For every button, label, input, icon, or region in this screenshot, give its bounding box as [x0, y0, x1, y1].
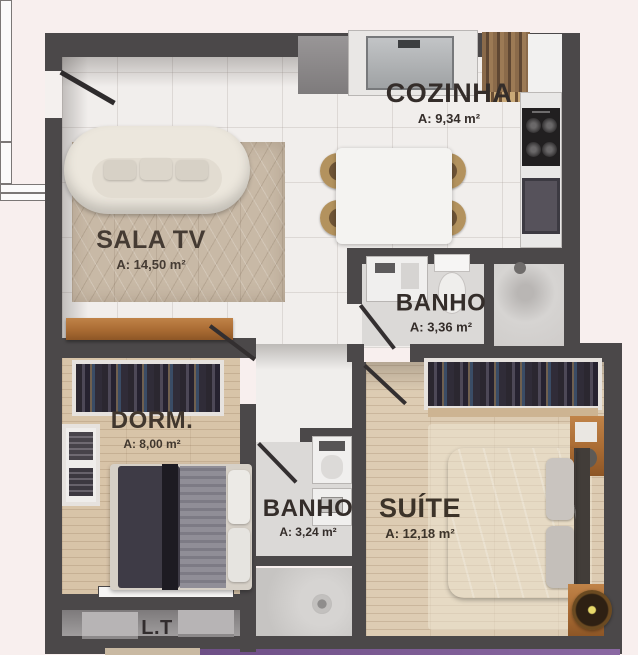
- room-label-sala-tv: SALA TV A: 14,50 m²: [96, 228, 206, 272]
- window-kitchen: [0, 0, 12, 142]
- wall-left: [45, 118, 62, 652]
- dorm-pillow-1: [228, 470, 250, 524]
- room-area-suite: A: 12,18 m²: [379, 526, 461, 541]
- stove-burner-3: [526, 142, 541, 157]
- sofa-cushion-1: [104, 160, 136, 180]
- fridge: [528, 34, 562, 92]
- stove: [522, 108, 560, 166]
- room-name-lt: L.T: [141, 618, 173, 638]
- shower-drain-icon: [312, 594, 332, 614]
- room-label-banho-social: BANHO A: 3,36 m²: [396, 292, 487, 335]
- dorm-shelf-box-2: [69, 468, 93, 496]
- bath-social-basin: [401, 263, 419, 289]
- room-label-cozinha: COZINHA A: 9,34 m²: [386, 80, 513, 126]
- window-bath-social: [0, 142, 12, 184]
- bath-social-faucet: [375, 263, 395, 273]
- shadow-hallway: [256, 344, 352, 370]
- shadow-top-sala: [62, 57, 320, 87]
- room-name-cozinha: COZINHA: [386, 80, 513, 107]
- bath-suite-toilet-tank: [319, 441, 345, 451]
- nightstand-object: [575, 422, 597, 442]
- kitchen-faucet: [398, 40, 420, 48]
- wall-suite-top-left: [347, 344, 364, 362]
- dorm-bed-fold: [162, 464, 178, 590]
- stove-knobs: [532, 111, 550, 113]
- accent-strip-purple: [200, 649, 620, 655]
- shower-social: [494, 264, 564, 346]
- room-area-banho-suite: A: 3,24 m²: [263, 525, 354, 539]
- room-name-banho-social: BANHO: [396, 292, 487, 316]
- wall-right-upper: [562, 33, 580, 348]
- room-label-lt: L.T: [141, 618, 173, 638]
- bath-suite-toilet-seat: [321, 455, 343, 479]
- lt-unit-2: [178, 610, 234, 637]
- stove-burner-1: [526, 118, 541, 133]
- room-label-dorm: DORM. A: 8,00 m²: [111, 409, 194, 451]
- oven: [522, 178, 560, 234]
- room-area-banho-social: A: 3,36 m²: [396, 320, 487, 335]
- sofa-cushion-2: [140, 158, 172, 180]
- room-name-suite: SUÍTE: [379, 495, 461, 522]
- window-bath-suite: [0, 193, 46, 201]
- dorm-shelf: [62, 424, 100, 506]
- shower-head-icon: [514, 262, 526, 274]
- bath-suite-shower-floor: [256, 568, 352, 638]
- wall-suite-bath: [352, 362, 366, 648]
- suite-pillow-1: [546, 458, 574, 520]
- kitchen-cabinet: [298, 36, 350, 94]
- dorm-bed-throw: [180, 466, 226, 588]
- tv-sideboard: [66, 318, 233, 340]
- room-label-banho-suite: BANHO A: 3,24 m²: [263, 497, 354, 539]
- wall-bath-suite-partition: [256, 556, 352, 566]
- room-area-cozinha: A: 9,34 m²: [386, 111, 513, 126]
- entrance-opening: [45, 71, 62, 118]
- dining-table: [336, 148, 452, 244]
- wall-left-stub: [45, 33, 62, 71]
- suite-pillow-2: [546, 526, 574, 588]
- room-name-banho-suite: BANHO: [263, 497, 354, 521]
- stove-burner-4: [542, 142, 557, 157]
- sofa-cushion-3: [176, 160, 208, 180]
- accent-strip-tan: [105, 648, 200, 655]
- suite-headboard: [574, 448, 590, 598]
- toilet-tank: [434, 254, 470, 272]
- floor-plan: COZINHA A: 9,34 m² SALA TV A: 14,50 m² B…: [0, 0, 638, 655]
- suite-wardrobe: [424, 358, 602, 410]
- dorm-bed: [110, 464, 252, 590]
- room-label-suite: SUÍTE A: 12,18 m²: [379, 495, 461, 541]
- bath-suite-toilet: [312, 436, 352, 484]
- dorm-pillow-2: [228, 528, 250, 582]
- room-area-dorm: A: 8,00 m²: [111, 437, 194, 451]
- dorm-shelf-box-1: [69, 432, 93, 460]
- suite-lamp-icon: [572, 590, 612, 630]
- lt-unit-1: [82, 612, 138, 639]
- room-name-sala-tv: SALA TV: [96, 228, 206, 253]
- room-name-dorm: DORM.: [111, 409, 194, 433]
- wall-bath-social-left-stub: [347, 248, 362, 304]
- stove-burner-2: [542, 118, 557, 133]
- room-area-sala-tv: A: 14,50 m²: [96, 257, 206, 272]
